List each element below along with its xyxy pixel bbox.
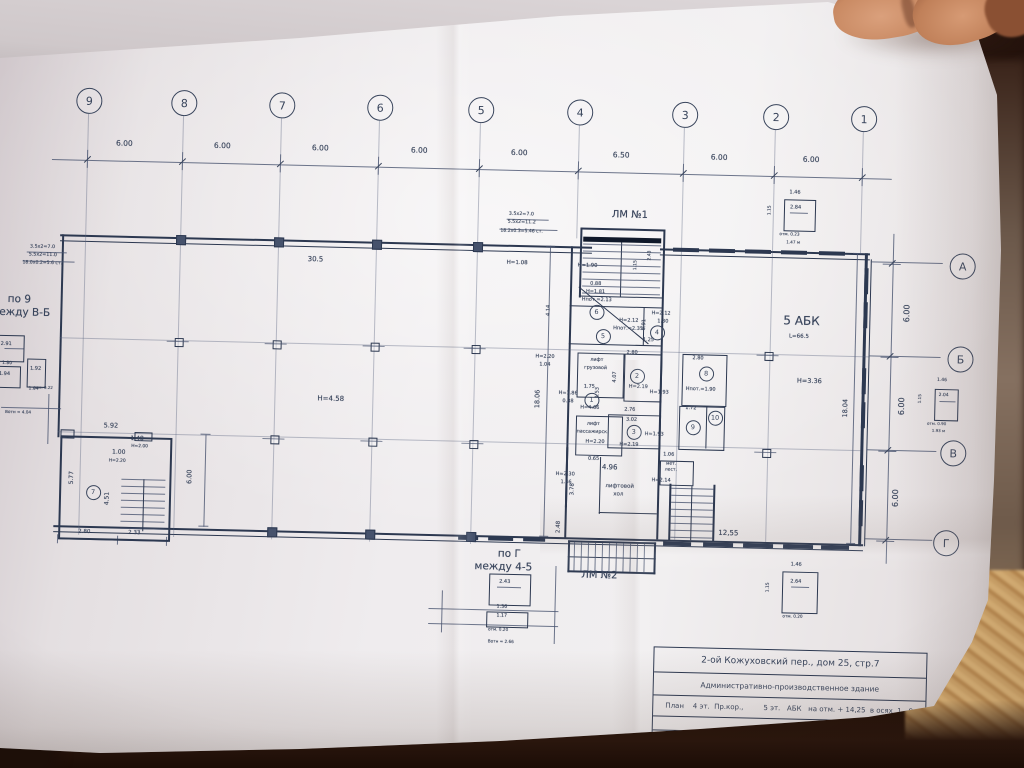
plan-annotation: 2.80 <box>78 530 90 536</box>
window-segment <box>862 368 866 394</box>
axis-dim-top: 6.00 <box>502 148 536 158</box>
column-mark <box>370 342 379 351</box>
plan-annotation: 18.2х0.3=5.46 ст. <box>500 230 543 236</box>
plan-line <box>543 246 550 537</box>
plan-annotation: 3.5х2=7.0 <box>509 212 534 218</box>
plan-annotation: Нпот.=1.90 <box>686 387 716 393</box>
window-segment <box>819 251 845 255</box>
column-tick <box>262 438 284 440</box>
plan-annotation: 1.80 <box>2 362 12 367</box>
stair-tread <box>582 272 660 275</box>
plan-annotation: 3.78 <box>570 483 576 495</box>
plan-line <box>203 435 206 527</box>
axis-dim-top: 6.00 <box>303 143 337 153</box>
plan-annotation: 1.30 <box>657 319 668 325</box>
stair-tread <box>671 488 713 490</box>
plan-annotation: Н=1.08 <box>507 261 528 267</box>
plan-line <box>583 237 661 243</box>
plan-annotation: по 9 <box>8 294 32 306</box>
wall-column-mark <box>365 530 375 540</box>
window-segment <box>673 248 699 252</box>
plan-annotation: 1.06 <box>663 453 674 459</box>
plan-annotation: между 4-5 <box>474 561 532 573</box>
axis-bubble-top: 6 <box>367 94 394 121</box>
plan-annotation: лест. <box>665 469 677 474</box>
plan-annotation: 5.92 <box>104 422 119 429</box>
axis-bubble-top: 8 <box>171 90 198 117</box>
plan-annotation: 1.25 <box>643 338 654 344</box>
plan-annotation: лифт <box>587 422 600 427</box>
room-number-bubble: 6 <box>589 304 604 319</box>
window-segment <box>745 249 771 253</box>
wall-column-mark <box>176 235 186 245</box>
wall-column-mark <box>372 240 382 250</box>
room-number-bubble: 5 <box>595 328 610 343</box>
plan-annotation: 1.72 <box>685 406 696 412</box>
window-segment <box>859 465 863 491</box>
column-mark <box>270 435 279 444</box>
room-number-bubble: 9 <box>685 420 700 435</box>
plan-line <box>271 118 282 539</box>
plan-annotation: 4.14 <box>546 305 552 316</box>
window-segment <box>709 249 735 253</box>
window-segment <box>861 402 865 428</box>
wall-column-mark <box>274 237 284 247</box>
column-tick <box>363 345 385 347</box>
plan-line <box>660 254 870 260</box>
plan-annotation: отм. 0.20 <box>782 614 802 619</box>
column-mark <box>764 351 773 360</box>
plan-annotation: отм. 0.23 <box>779 232 799 237</box>
plan-annotation: 0.88 <box>562 399 573 405</box>
plan-annotation: 6.00 <box>186 469 193 484</box>
plan-annotation: Вотн = 4.04 <box>5 410 31 415</box>
plan-annotation: 1.15 <box>767 582 772 592</box>
window-segment <box>488 536 513 540</box>
plan-annotation: 2.64 <box>790 580 801 586</box>
plan-annotation: 18.06 <box>534 390 541 409</box>
wall-column-mark <box>267 527 277 537</box>
room-number-bubble: 10 <box>707 410 722 425</box>
plan-annotation: ЛМ №1 <box>612 210 648 221</box>
plan-annotation: 0.65 <box>588 457 599 463</box>
plan-annotation: 1.92 <box>30 367 41 373</box>
plan-annotation: грузовой <box>584 366 607 372</box>
axis-dim-top: 6.00 <box>402 145 436 155</box>
axis-bubble-top: 7 <box>269 92 296 119</box>
plan-annotation: 1.46 <box>789 190 800 196</box>
plan-annotation: Н=2.20 <box>109 459 126 464</box>
axis-dim-top: 6.00 <box>205 141 239 151</box>
photo-of-floor-plan: 9876543216.006.006.006.006.006.506.006.0… <box>0 0 1024 768</box>
plan-annotation: 1.15 <box>768 205 773 215</box>
plan-room-box <box>0 335 25 363</box>
plan-annotation: L=66.5 <box>789 334 809 340</box>
plan-annotation: Н=2.00 <box>131 445 148 450</box>
plan-annotation: Н=1.81 <box>586 290 605 296</box>
axis-dim-top: 6.00 <box>702 152 736 162</box>
plan-annotation: Н=2.12 <box>619 318 638 324</box>
plan-annotation: Н=3.36 <box>797 378 822 385</box>
wall-column-mark <box>473 242 483 252</box>
plan-annotation: 18.0х0.2=5.6 ст. <box>22 261 62 267</box>
room-number-bubble: 7 <box>85 484 100 499</box>
plan-annotation: Н=1.86 <box>559 391 578 397</box>
plan-line <box>198 526 208 527</box>
plan-annotation: Н=4.58 <box>317 395 344 403</box>
plan-annotation: 2.80 <box>692 356 703 362</box>
plan-annotation: 0.88 <box>590 282 601 288</box>
axis-bubble-top: 2 <box>763 104 790 131</box>
axis-dim-top: 6.50 <box>604 150 638 160</box>
axis-bubble-top: 4 <box>567 99 594 126</box>
plan-annotation: Н=4.66 <box>580 406 599 412</box>
stair-tread <box>583 244 661 247</box>
plan-annotation: по Г <box>498 549 521 561</box>
axis-bubble-top: 1 <box>851 106 878 133</box>
plan-annotation: 30.5 <box>308 256 324 264</box>
plan-annotation: Нпот.=2.35 <box>613 326 643 332</box>
ramp-diagonal-line <box>578 286 648 344</box>
plan-annotation: 5.77 <box>69 471 76 485</box>
plan-annotation: 1.15 <box>634 260 639 270</box>
plan-annotation: 5.5х2=11.0 <box>29 253 57 259</box>
plan-annotation: отм. 0.22 <box>34 386 53 391</box>
plan-annotation: пассажирск. <box>577 429 609 435</box>
plan-annotation: Н=2.20 <box>535 354 554 360</box>
plan-annotation: 1.47 м <box>786 240 800 245</box>
plan-annotation: Н=2.12 <box>651 311 670 317</box>
plan-annotation: 2.43 <box>499 580 510 586</box>
room-number-bubble: 8 <box>698 366 713 381</box>
plan-line <box>576 125 579 238</box>
plan-annotation: 1.17 <box>496 614 507 619</box>
column-mark <box>368 437 377 446</box>
plan-annotation: 1.48 <box>130 436 144 443</box>
plan-annotation: 3.5х2=7.0 <box>30 245 55 251</box>
plan-annotation: 5.5х2=11.2 <box>508 220 536 226</box>
plan-annotation: Н=1.90 <box>578 263 598 269</box>
plan-line <box>47 394 49 444</box>
plan-annotation: Нпот.=2.13 <box>582 298 612 304</box>
plan-annotation: 2.33 <box>128 531 140 537</box>
plan-annotation: 5 АБК <box>783 314 820 327</box>
plan-room-box <box>27 358 47 387</box>
plan-annotation: 18.04 <box>842 399 849 418</box>
plan-annotation: Н=2.30 <box>556 472 575 478</box>
plan-annotation: 2.91 <box>1 342 12 348</box>
plan-line <box>860 132 864 253</box>
plan-line <box>570 305 663 308</box>
plan-annotation: Вотн = 2.66 <box>488 639 514 644</box>
plan-annotation: 1.75 <box>584 385 595 391</box>
plan-annotation: 4.51 <box>104 492 111 506</box>
window-segment <box>864 268 868 294</box>
plan-annotation: 2.43 <box>648 250 653 260</box>
plan-annotation: 1.36 <box>496 605 507 610</box>
window-segment <box>781 250 807 254</box>
plan-annotation: 0.91 <box>642 319 648 330</box>
plan-annotation: 1.53 <box>595 387 601 398</box>
column-mark <box>174 337 183 346</box>
plan-annotation: Н=2.20 <box>585 440 604 446</box>
plan-line <box>580 227 664 231</box>
plan-annotation: между В-Б <box>0 307 50 319</box>
plan-annotation: 2.80 <box>626 351 637 357</box>
blueprint-paper: 9876543216.006.006.006.006.006.506.006.0… <box>0 0 1024 768</box>
column-mark <box>272 340 281 349</box>
plan-annotation: лифт <box>590 358 603 363</box>
column-mark <box>762 448 771 457</box>
plan-annotation: отм. 0.20 <box>488 627 508 632</box>
plan-annotation: 1.00 <box>112 450 126 457</box>
plan-line <box>554 566 557 644</box>
plan-annotation: 1.04 <box>539 363 550 369</box>
axis-bubble-top: 3 <box>672 102 699 129</box>
plan-line <box>173 116 184 537</box>
axis-dim-top: 6.00 <box>107 138 141 148</box>
plan-room-box <box>60 429 74 438</box>
plan-line <box>620 239 622 296</box>
plan-annotation: 2.84 <box>790 205 801 211</box>
plan-line <box>765 130 775 542</box>
axis-dim-top: 6.00 <box>794 155 828 165</box>
axis-bubble-top: 9 <box>76 88 103 115</box>
window-segment <box>863 302 867 328</box>
plan-annotation: 1.94 <box>0 372 10 378</box>
plan-line <box>369 121 380 542</box>
